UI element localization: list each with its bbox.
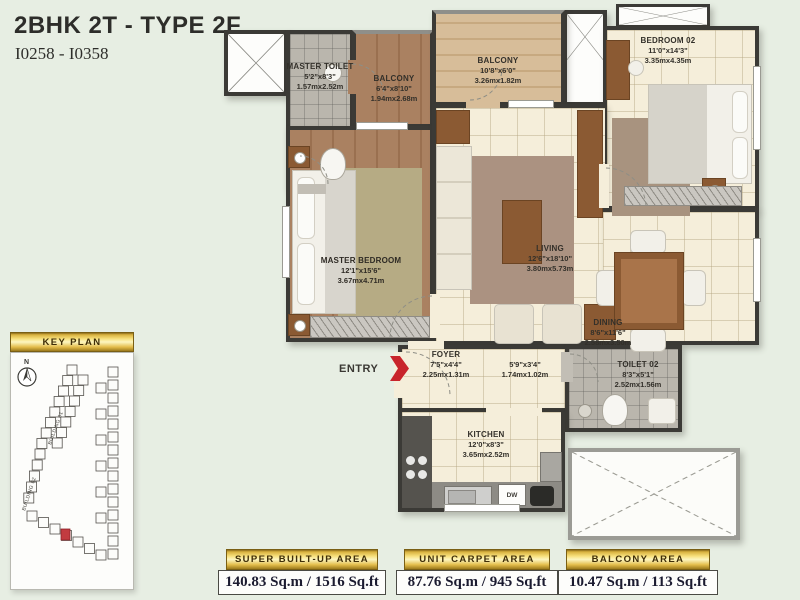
- label-kitchen: KITCHEN 12'0"x8'3" 3.65mx2.52m: [440, 430, 532, 460]
- bedroom-02-bed: [648, 84, 752, 184]
- label-foyer: FOYER 7'5"x4'4" 2.25mx1.31m: [408, 350, 484, 380]
- nightstand: [288, 314, 310, 336]
- floorplan-page: 2BHK 2T - TYPE 2F I0258 - I0358: [0, 0, 800, 600]
- cross-mark-icon: [619, 7, 707, 25]
- dining-chair: [630, 230, 666, 254]
- nightstand: [288, 146, 310, 168]
- label-toilet-02: TOILET 02 8'3"x5'1" 2.52mx1.56m: [594, 360, 682, 390]
- label-balcony-2: BALCONY 10'8"x6'0" 3.26mx1.82m: [446, 56, 550, 86]
- dishwasher-label: DW: [507, 492, 518, 499]
- unit-carpet-area-box: UNIT CARPET AREA 87.76 Sq.m / 945 Sq.ft: [396, 549, 558, 595]
- shower-drain-icon: [578, 404, 592, 418]
- hob-burner-icon: [406, 470, 415, 479]
- keyplan-box: N BUILDING 01 BUILDING 02: [10, 352, 134, 590]
- dining-table-top: [621, 259, 677, 323]
- super-builtup-area-header: SUPER BUILT-UP AREA: [226, 549, 378, 570]
- sofa: [436, 146, 472, 290]
- label-master-bedroom: MASTER BEDROOM 12'1"x15'6" 3.67mx4.71m: [302, 256, 420, 286]
- label-bedroom-02: BEDROOM 02 11'0"x14'3" 3.35mx4.35m: [612, 36, 724, 66]
- entry-label: ENTRY: [339, 363, 378, 375]
- balcony-2-door-opening: [466, 100, 500, 108]
- balcony-area-box: BALCONY AREA 10.47 Sq.m / 113 Sq.ft: [558, 549, 718, 595]
- balcony-area-value: 10.47 Sq.m / 113 Sq.ft: [558, 570, 718, 595]
- master-toilet-door-opening: [298, 184, 326, 194]
- window-dining: [753, 238, 761, 302]
- fridge: [540, 452, 562, 482]
- unit-code: I0258 - I0358: [15, 44, 108, 64]
- stove: [530, 486, 554, 506]
- lamp-icon: [294, 152, 306, 164]
- hob-burner-icon: [418, 456, 427, 465]
- sink-basin: [448, 490, 476, 504]
- bed-blanket: [649, 85, 707, 183]
- keyplan-sketch: N BUILDING 01 BUILDING 02: [11, 353, 133, 589]
- toilet-sink: [648, 398, 676, 424]
- master-bedroom-wardrobe: [310, 316, 430, 338]
- hob-burner-icon: [418, 470, 427, 479]
- unit-carpet-area-header: UNIT CARPET AREA: [404, 549, 550, 570]
- bedroom-02-wardrobe: [624, 186, 742, 206]
- bed-pillow: [732, 91, 748, 133]
- kitchen-counter: [402, 416, 432, 508]
- dishwasher: DW: [498, 484, 526, 506]
- cross-mark-icon: [567, 14, 603, 60]
- unit-carpet-area-value: 87.76 Sq.m / 945 Sq.ft: [396, 570, 558, 595]
- armchair: [494, 304, 534, 344]
- dining-chair: [682, 270, 706, 306]
- toilet-wc: [602, 394, 628, 426]
- bed-pillow: [732, 137, 748, 179]
- duct-box-top-right: [616, 4, 710, 28]
- compass-north-label: N: [24, 359, 29, 366]
- balcony-area-header: BALCONY AREA: [566, 549, 710, 570]
- label-dining: DINING 8'6"x11'6" 2.58mx3.50m: [562, 318, 654, 348]
- label-balcony-1: BALCONY 6'4"x8'10" 1.94mx2.68m: [352, 74, 436, 104]
- label-passage: 5'9"x3'4" 1.74mx1.02m: [486, 360, 564, 380]
- void-area-bottom-right: [568, 448, 740, 540]
- super-builtup-area-value: 140.83 Sq.m / 1516 Sq.ft: [218, 570, 386, 595]
- window-balcony-2: [508, 100, 554, 108]
- window-balcony-1: [356, 122, 408, 130]
- page-title: 2BHK 2T - TYPE 2F: [14, 12, 241, 40]
- hob-burner-icon: [406, 456, 415, 465]
- passage-kitchen-opening: [486, 408, 542, 416]
- bedroom-02-door-opening: [599, 164, 609, 208]
- highlighted-unit-marker: [61, 529, 70, 540]
- label-master-toilet: MASTER TOILET 5'2"x8'3" 1.57mx2.52m: [276, 62, 364, 92]
- window-master-bedroom: [282, 206, 290, 278]
- duct-shaft-top-middle: [563, 10, 607, 106]
- side-table: [436, 110, 470, 144]
- super-builtup-area-box: SUPER BUILT-UP AREA 140.83 Sq.m / 1516 S…: [218, 549, 386, 595]
- bed-blanket: [325, 171, 355, 313]
- toilet-wc: [320, 148, 346, 180]
- keyplan-header: KEY PLAN: [10, 332, 134, 352]
- master-bedroom-door-opening: [430, 294, 440, 338]
- cross-mark-icon: [572, 452, 736, 536]
- kitchen-sink: [444, 486, 492, 506]
- window-bedroom-02: [753, 66, 761, 150]
- lamp-icon: [294, 320, 306, 332]
- label-living: LIVING 12'6"x18'10" 3.80mx5.73m: [504, 244, 596, 274]
- living-foyer-opening: [408, 341, 444, 349]
- window-kitchen: [444, 504, 520, 512]
